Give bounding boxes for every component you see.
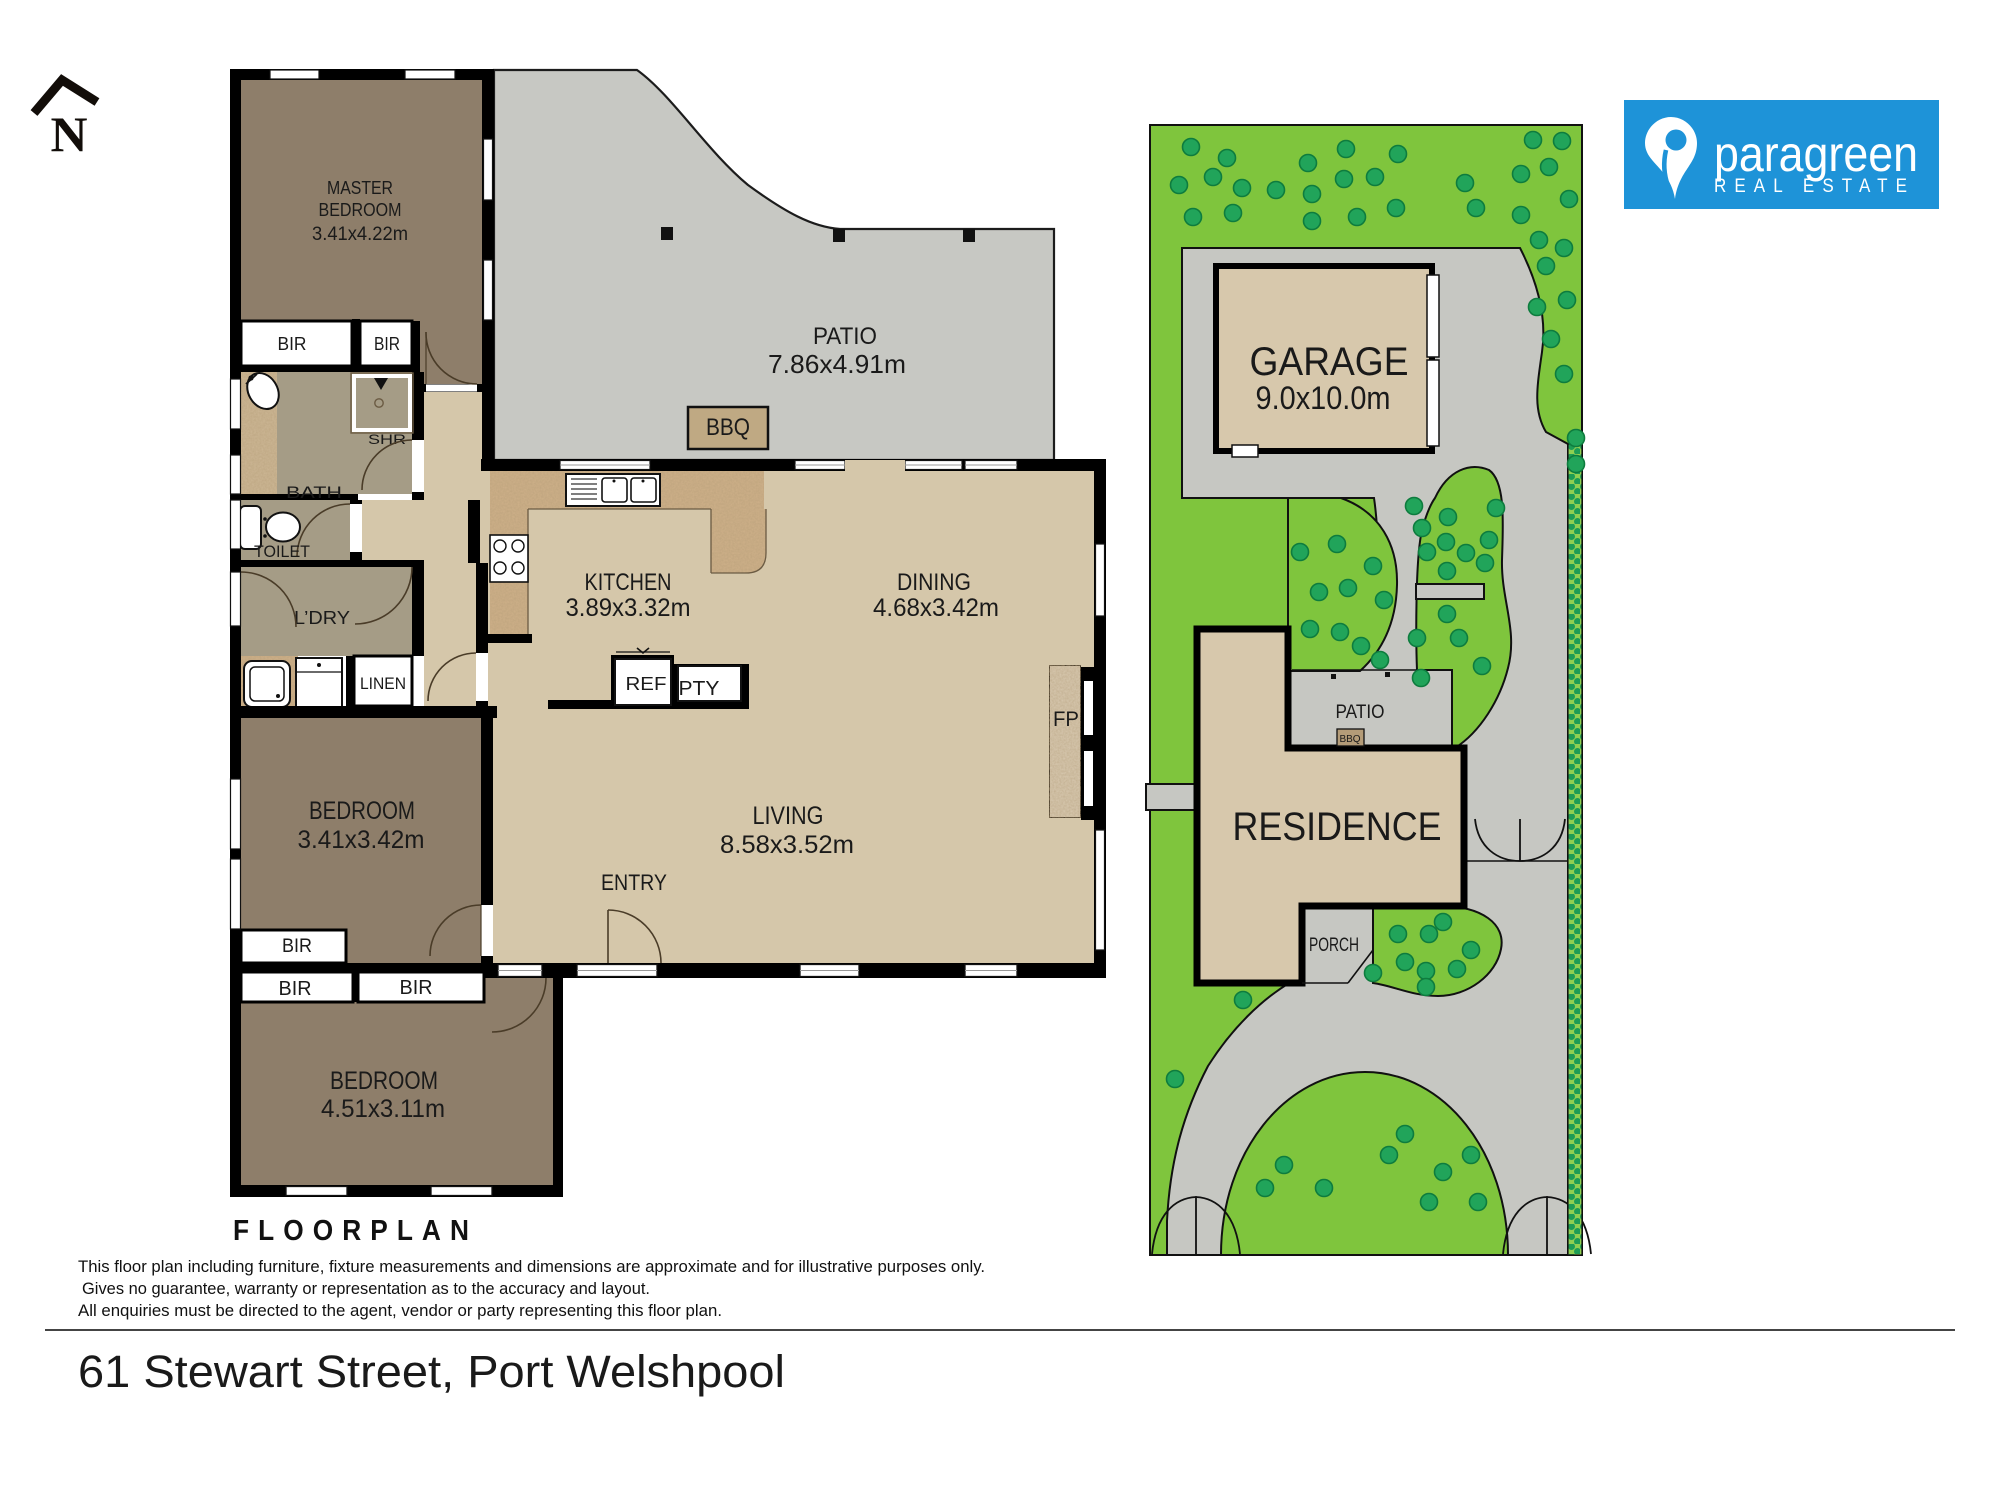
- svg-text:FLOORPLAN: FLOORPLAN: [233, 1215, 478, 1247]
- svg-text:KITCHEN: KITCHEN: [585, 569, 672, 596]
- svg-text:4.51x3.11m: 4.51x3.11m: [321, 1095, 445, 1123]
- svg-text:BIR: BIR: [374, 334, 400, 354]
- svg-text:PATIO: PATIO: [1336, 702, 1385, 723]
- svg-text:BATH: BATH: [286, 483, 342, 502]
- svg-text:L’DRY: L’DRY: [294, 608, 350, 628]
- svg-text:All enquiries must be directed: All enquiries must be directed to the ag…: [78, 1302, 722, 1320]
- svg-text:BIR: BIR: [282, 936, 312, 957]
- svg-text:N: N: [51, 106, 88, 162]
- svg-text:SHR: SHR: [368, 431, 406, 447]
- svg-text:FP: FP: [1053, 708, 1079, 731]
- svg-text:LIVING: LIVING: [753, 802, 824, 830]
- svg-text:7.86x4.91m: 7.86x4.91m: [768, 349, 906, 379]
- svg-text:This floor plan including furn: This floor plan including furniture, fix…: [78, 1258, 985, 1276]
- svg-text:TOILET: TOILET: [254, 543, 310, 561]
- svg-text:BEDROOM: BEDROOM: [330, 1067, 438, 1095]
- svg-text:3.89x3.32m: 3.89x3.32m: [566, 594, 691, 622]
- svg-text:BIR: BIR: [278, 334, 307, 354]
- svg-text:BIR: BIR: [279, 978, 312, 1000]
- svg-text:RESIDENCE: RESIDENCE: [1233, 805, 1442, 849]
- svg-text:PORCH: PORCH: [1309, 935, 1359, 956]
- svg-text:ENTRY: ENTRY: [601, 870, 667, 895]
- svg-text:MASTER: MASTER: [327, 178, 393, 198]
- svg-text:paragreen: paragreen: [1714, 126, 1918, 182]
- svg-text:REF: REF: [626, 674, 667, 694]
- svg-text:BIR: BIR: [400, 977, 433, 999]
- svg-text:LINEN: LINEN: [360, 675, 406, 693]
- svg-text:BBQ: BBQ: [1339, 734, 1360, 745]
- svg-text:BEDROOM: BEDROOM: [309, 797, 415, 825]
- svg-text:GARAGE: GARAGE: [1250, 340, 1409, 384]
- svg-text:PATIO: PATIO: [813, 323, 877, 350]
- svg-text:4.68x3.42m: 4.68x3.42m: [873, 594, 999, 622]
- svg-text:BBQ: BBQ: [706, 414, 750, 441]
- svg-text:REAL ESTATE: REAL ESTATE: [1714, 176, 1915, 197]
- svg-text:3.41x4.22m: 3.41x4.22m: [312, 224, 408, 245]
- svg-text:PTY: PTY: [679, 678, 720, 700]
- svg-text:BEDROOM: BEDROOM: [319, 200, 402, 220]
- svg-text:8.58x3.52m: 8.58x3.52m: [720, 831, 854, 859]
- svg-text:DINING: DINING: [897, 569, 971, 596]
- svg-text:Gives no guarantee, warranty o: Gives no guarantee, warranty or represen…: [82, 1280, 650, 1298]
- svg-text:3.41x3.42m: 3.41x3.42m: [298, 826, 425, 854]
- svg-text:9.0x10.0m: 9.0x10.0m: [1256, 380, 1391, 416]
- svg-text:61 Stewart Street, Port Welshp: 61 Stewart Street, Port Welshpool: [78, 1346, 785, 1397]
